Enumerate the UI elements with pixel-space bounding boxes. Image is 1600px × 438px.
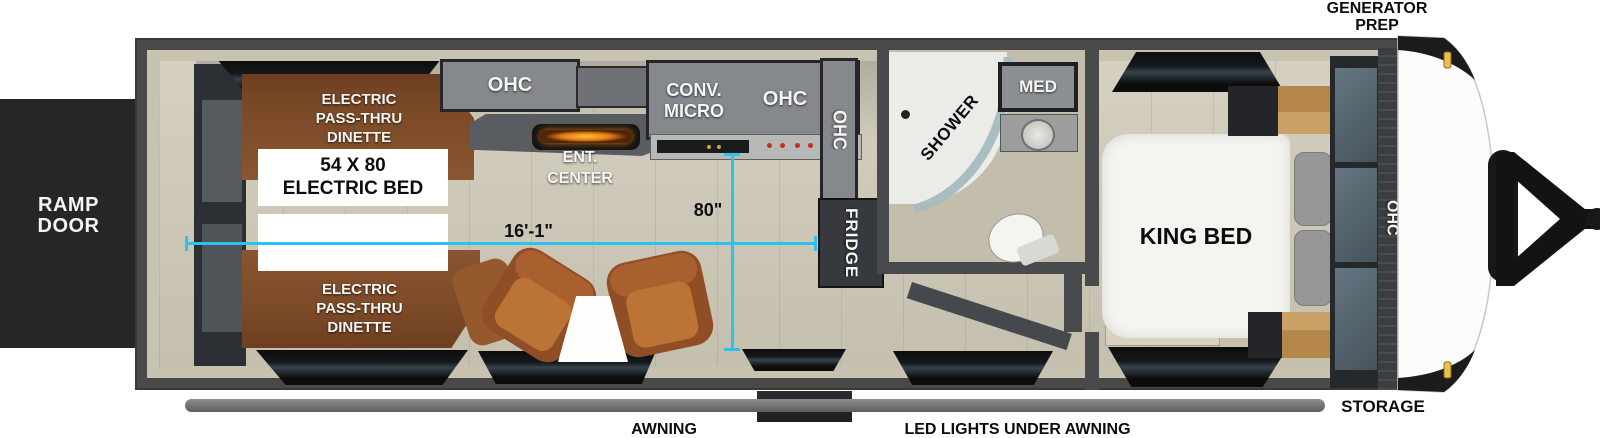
window-entry-bottom <box>893 351 1053 385</box>
length-dim-cap-right <box>814 236 817 251</box>
chair-seat <box>624 280 701 350</box>
stove-knob-2 <box>717 145 721 149</box>
dinette-top-label: ELECTRIC PASS-THRU DINETTE <box>250 90 468 147</box>
width-dim-cap-bottom <box>724 348 740 351</box>
ent-center-label: ENT. CENTER <box>505 147 655 189</box>
stove-burner-4 <box>808 143 813 148</box>
ohc-cabinet-left: OHC <box>440 59 580 112</box>
electric-bed-label-box: 54 X 80 ELECTRIC BED <box>258 149 448 206</box>
ohc-cabinet-kitchen-end: OHC <box>820 58 858 202</box>
bedroom-cabinet-bottom <box>1248 312 1282 358</box>
generator-prep-label: GENERATOR PREP <box>1292 0 1462 34</box>
kitchen-sink <box>657 140 749 153</box>
pillow-top <box>1294 152 1332 226</box>
width-dimension-line <box>731 154 734 350</box>
wardrobe-door <box>1335 268 1377 370</box>
nightstand-drawer <box>1282 312 1334 330</box>
cabinet-connector <box>576 66 650 108</box>
nightstand-drawer <box>1278 112 1334 134</box>
awning-label: AWNING <box>614 421 714 438</box>
nightstand-top <box>1278 86 1334 134</box>
bedroom-cabinet-top <box>1228 86 1278 136</box>
dinette-bottom-label: ELECTRIC PASS-THRU DINETTE <box>252 280 467 337</box>
width-dim-cap-top <box>724 153 740 156</box>
ramp-interior-glass-bottom <box>202 224 242 332</box>
led-lights-label: LED LIGHTS UNDER AWNING <box>895 421 1140 438</box>
fireplace-glow <box>540 130 632 143</box>
pillow-bottom <box>1294 230 1332 306</box>
ohc-mid-label: OHC <box>752 88 818 111</box>
stove-burner-3 <box>795 143 800 148</box>
med-label: MED <box>1019 77 1057 97</box>
fridge: FRIDGE <box>818 198 884 288</box>
wardrobe-door <box>1335 168 1377 262</box>
ohc-kitchen-end-label: OHC <box>829 110 850 150</box>
medicine-cabinet: MED <box>998 62 1078 112</box>
conv-micro-label: CONV. MICRO <box>650 80 738 122</box>
window-bottom-1 <box>256 350 468 385</box>
ramp-door-label-2: DOOR <box>0 216 137 237</box>
wardrobe <box>1330 56 1382 388</box>
bedroom-wall-stub <box>1085 332 1099 390</box>
a-frame-hitch <box>1496 152 1586 286</box>
stove-burner-2 <box>780 143 785 148</box>
ramp-interior-glass-top <box>202 100 242 202</box>
ramp-door-label-1: RAMP <box>0 195 137 216</box>
ohc-left-label: OHC <box>488 74 532 97</box>
vanity-sink <box>1021 119 1055 151</box>
nightstand-bottom <box>1282 312 1334 358</box>
length-dimension-label: 16'-1" <box>486 221 571 242</box>
storage-label: STORAGE <box>1328 397 1438 417</box>
king-bed: KING BED <box>1102 134 1290 338</box>
wardrobe-door <box>1335 68 1377 162</box>
length-dimension-line <box>186 242 816 245</box>
awning-bar <box>185 399 1325 412</box>
front-cap <box>1398 36 1494 392</box>
ramp-door: RAMP DOOR <box>0 99 137 348</box>
stove-burner-1 <box>767 143 772 148</box>
king-bed-label: KING BED <box>1140 223 1252 250</box>
bathroom-vanity <box>1000 114 1078 152</box>
stove-knob-1 <box>707 145 711 149</box>
rv-floorplan: RAMP DOOR ELECTRIC PASS-THRU DINETTE ELE… <box>0 0 1600 438</box>
length-dim-cap-left <box>185 236 188 251</box>
bedroom-wall <box>1085 48 1099 286</box>
front-cap-and-hitch <box>1390 0 1600 438</box>
marker-light-bottom <box>1444 362 1451 378</box>
fridge-label: FRIDGE <box>841 208 861 278</box>
entry-door-jamb <box>1064 266 1082 332</box>
window-bottom-3 <box>742 349 846 371</box>
width-dimension-label: 80" <box>684 200 732 221</box>
marker-light-top <box>1444 52 1451 68</box>
